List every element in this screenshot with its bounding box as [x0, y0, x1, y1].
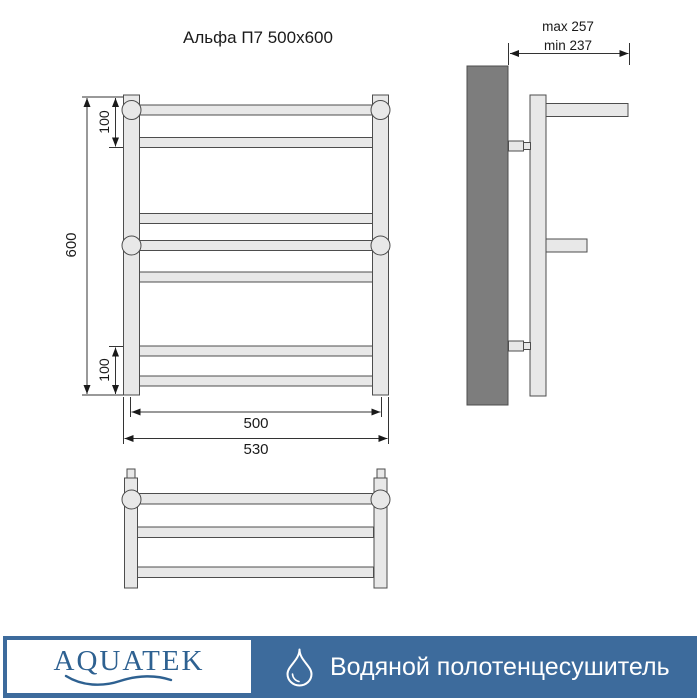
top-bar-1 — [132, 494, 381, 505]
water-drop-icon — [285, 648, 314, 687]
front-bar-4 — [131, 241, 381, 251]
product-type-label: Водяной полотенцесушитель — [330, 653, 670, 682]
footer-banner: AQUATEK Водяной полотенцесушитель — [3, 636, 697, 698]
technical-drawing: Альфа П7 500x600 — [0, 0, 700, 636]
dim-label-500: 500 — [243, 415, 268, 432]
front-bracket-top-left — [122, 101, 141, 120]
front-bar-3 — [140, 214, 373, 224]
front-bracket-mid-right — [371, 236, 390, 255]
brand-name: AQUATEK — [54, 647, 205, 676]
side-bracket-top-nub — [524, 143, 531, 150]
top-right-vertical — [374, 497, 387, 588]
side-bracket-bottom-sleeve — [509, 341, 524, 351]
brand-logo-box: AQUATEK — [7, 640, 251, 693]
drawing-title: Альфа П7 500x600 — [183, 28, 333, 47]
dim-label-530: 530 — [243, 441, 268, 458]
front-bar-2 — [140, 138, 373, 148]
front-bracket-mid-left — [122, 236, 141, 255]
side-mid-bar — [546, 239, 587, 252]
top-bar-2 — [138, 527, 374, 538]
dim-label-min: min 237 — [544, 38, 592, 53]
top-right-boss — [371, 490, 390, 509]
top-left-vertical — [125, 497, 138, 588]
page: Альфа П7 500x600 — [0, 0, 700, 700]
side-bracket-bottom-nub — [524, 343, 531, 350]
side-wall — [467, 66, 508, 405]
side-collector — [530, 95, 546, 396]
side-bracket-top-sleeve — [509, 141, 524, 151]
dim-label-max: max 257 — [542, 19, 594, 34]
dim-label-600: 600 — [63, 232, 80, 257]
front-view — [122, 95, 390, 395]
dim-label-100-top: 100 — [96, 110, 112, 134]
front-bar-6 — [140, 346, 373, 356]
logo-wave-icon — [64, 673, 174, 687]
top-left-boss — [122, 490, 141, 509]
front-bar-7 — [140, 376, 373, 386]
dim-label-100-bottom: 100 — [96, 358, 112, 382]
top-bar-3 — [138, 567, 374, 578]
front-bar-5 — [140, 272, 373, 282]
front-bracket-top-right — [371, 101, 390, 120]
footer-right: Водяной полотенцесушитель — [285, 636, 670, 698]
top-view — [122, 469, 390, 588]
side-top-bar — [546, 104, 628, 117]
side-view — [467, 66, 628, 405]
front-bar-1 — [131, 105, 381, 115]
